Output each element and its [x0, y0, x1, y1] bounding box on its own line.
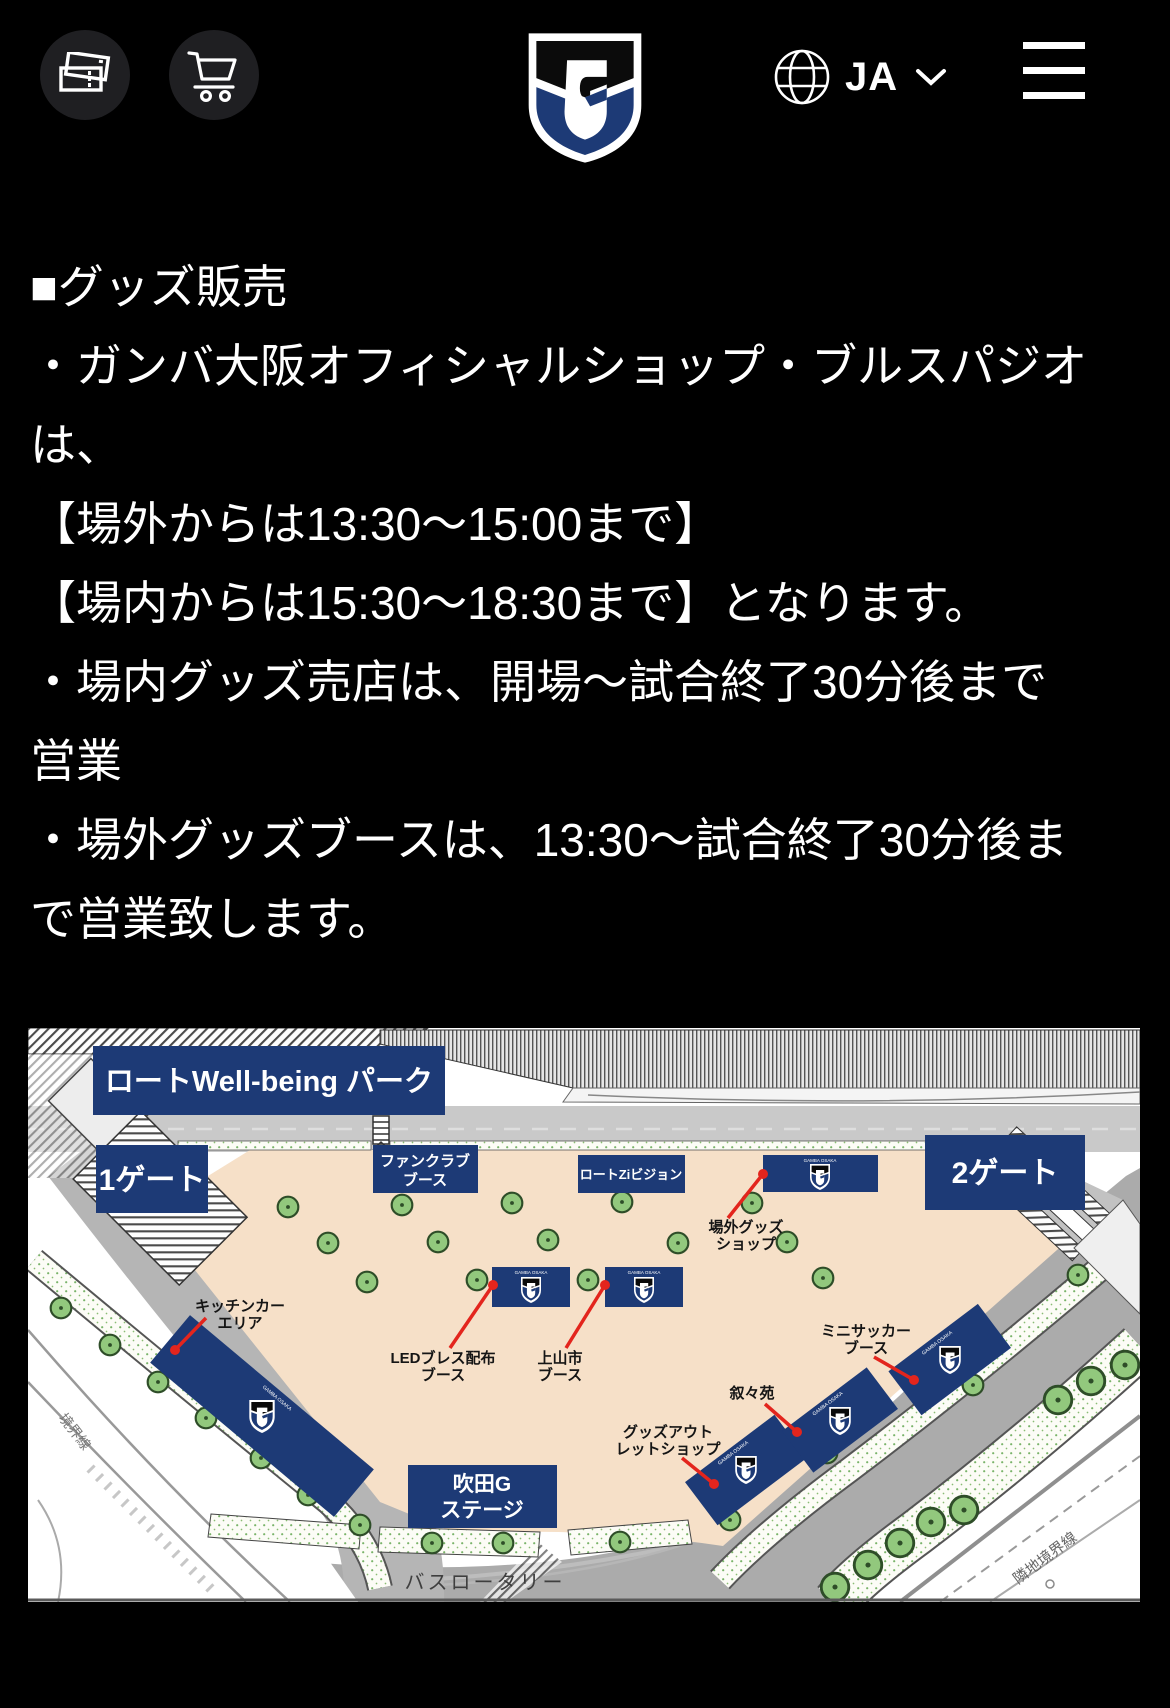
hamburger-menu-button[interactable] — [1023, 42, 1085, 100]
wellbeing-park-banner: ロートWell-being パーク — [93, 1046, 445, 1115]
svg-text:ミニサッカー: ミニサッカー — [821, 1323, 911, 1340]
svg-text:ショップ: ショップ — [716, 1236, 777, 1253]
svg-text:上山市: 上山市 — [537, 1349, 582, 1367]
svg-text:エリア: エリア — [217, 1315, 262, 1332]
cart-icon — [185, 47, 243, 103]
svg-text:叙々苑: 叙々苑 — [728, 1384, 774, 1402]
bus-rotary-label: バスロータリー — [405, 1571, 566, 1594]
paragraph: ・ガンバ大阪オフィシャルショップ・ブルスパジオは、 — [30, 327, 1092, 485]
chevron-down-icon — [914, 67, 948, 87]
svg-text:LEDブレス配布: LEDブレス配布 — [390, 1349, 495, 1367]
gate2-label-box: 2ゲート — [925, 1135, 1085, 1210]
svg-text:ロートWell-being パーク: ロートWell-being パーク — [105, 1065, 433, 1098]
suita-stage-box: 吹田G ステージ — [408, 1465, 557, 1528]
paragraph: ・場外グッズブースは、13:30～試合終了30分後まで営業致します。 — [30, 801, 1092, 959]
svg-text:2ゲート: 2ゲート — [952, 1157, 1059, 1190]
kaminoyama-booth: GAMBA OSAKA — [605, 1267, 683, 1307]
svg-text:吹田G: 吹田G — [453, 1472, 511, 1496]
cart-button[interactable] — [169, 30, 259, 120]
svg-text:ファンクラブ: ファンクラブ — [380, 1152, 470, 1170]
svg-text:ブース: ブース — [421, 1366, 465, 1384]
paragraph: ・場内グッズ売店は、開場～試合終了30分後まで営業 — [30, 643, 1092, 801]
booth-brand-text: GAMBA OSAKA — [628, 1270, 661, 1275]
svg-text:ステージ: ステージ — [440, 1499, 524, 1522]
svg-text:ブース: ブース — [403, 1171, 447, 1189]
booth-brand-text: GAMBA OSAKA — [804, 1158, 837, 1163]
language-code: JA — [845, 55, 898, 100]
svg-text:レットショップ: レットショップ — [615, 1441, 721, 1458]
page: JA ■グッズ販売 ・ガンバ大阪オフィシャルショップ・ブルスパジオは、 【場外か… — [0, 0, 1170, 1708]
svg-text:ブース: ブース — [844, 1339, 888, 1357]
svg-text:場外グッズ: 場外グッズ — [708, 1218, 783, 1236]
gamba-osaka-logo[interactable] — [521, 32, 649, 169]
language-selector[interactable]: JA — [773, 48, 948, 106]
tickets-button[interactable] — [40, 30, 130, 120]
paragraph: 【場外からは13:30～15:00まで】 — [30, 485, 1092, 564]
paragraph: ■グッズ販売 — [30, 248, 1092, 327]
ticket-icon — [57, 52, 113, 98]
outside-goods-shop-booth: GAMBA OSAKA — [763, 1155, 878, 1192]
venue-map-image: GAMBA OSAKA GAMBA OSAKA GAMBA OSAKA GAMB… — [28, 1028, 1140, 1602]
svg-text:ブース: ブース — [538, 1366, 582, 1384]
fanclub-booth-box: ファンクラブ ブース — [373, 1145, 478, 1193]
goods-sales-info-text: ■グッズ販売 ・ガンバ大阪オフィシャルショップ・ブルスパジオは、 【場外からは1… — [30, 248, 1092, 959]
paragraph: 【場内からは15:30～18:30まで】となります。 — [30, 564, 1092, 643]
gate1-label-box: 1ゲート — [96, 1145, 208, 1213]
svg-text:ロートZiビジョン: ロートZiビジョン — [580, 1167, 683, 1182]
booth-brand-text: GAMBA OSAKA — [515, 1270, 548, 1275]
globe-icon — [773, 48, 831, 106]
svg-text:1ゲート: 1ゲート — [99, 1164, 206, 1197]
svg-text:キッチンカー: キッチンカー — [195, 1298, 285, 1315]
led-booth: GAMBA OSAKA — [492, 1267, 570, 1307]
svg-text:グッズアウト: グッズアウト — [623, 1423, 713, 1441]
zivision-box: ロートZiビジョン — [578, 1155, 685, 1193]
